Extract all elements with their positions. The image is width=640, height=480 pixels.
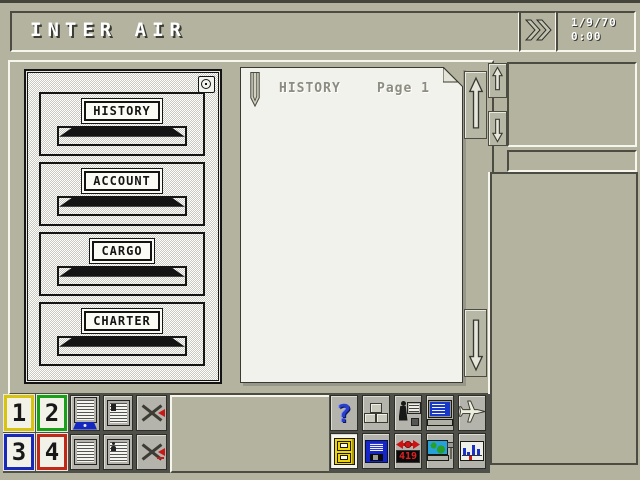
cargo-button[interactable] [362,395,390,431]
toolbar-left-group: 1 2 3 4 [3,394,171,473]
staff-button[interactable] [394,395,422,431]
computer-icon [427,400,453,426]
num-4-button[interactable]: 4 [37,434,67,470]
paper-title: HISTORY [279,81,341,96]
airplane-icon [459,400,486,427]
routes-button[interactable]: 419 [394,433,422,469]
list-down-button[interactable] [488,111,507,146]
arrow-down-icon [468,312,484,374]
cabinet-face: HISTORY ACCOUNT CARGO CHARTER [27,72,219,381]
floppy-disk-icon [365,440,388,463]
route-counter-icon: 419 [396,440,420,463]
num-3-label: 3 [12,438,26,466]
fast-forward-icon [525,19,552,45]
num-3-button[interactable]: 3 [4,434,34,470]
paperclip-icon [248,64,262,120]
drawer-label: CHARTER [84,311,160,331]
page-up-button[interactable] [464,71,487,139]
cargo-crates-icon [363,402,389,424]
newspaper-icon [73,397,97,430]
route-add-disabled-icon [138,397,165,429]
route-remove-disabled-icon [138,436,165,468]
report-page-button[interactable] [70,434,100,470]
flights-button[interactable] [458,395,486,431]
history-paper: HISTORY Page 1 [240,67,463,383]
statistics-button[interactable] [458,433,486,469]
drawer-handle [57,196,187,216]
game-time: 0:00 [571,30,602,43]
fast-forward-button[interactable] [519,11,557,52]
statistics-icon [460,441,484,461]
arrow-up-icon [491,65,504,96]
route-remove-disabled-button[interactable] [136,434,167,470]
page-fold-icon [443,67,463,91]
game-screen: INTER AIR 1/9/70 0:00 HISTORY [0,0,640,480]
num-1-label: 1 [12,399,26,427]
staff-report-icon [107,439,130,465]
aircraft-report-icon [107,400,130,426]
world-map-icon [427,440,454,462]
newspaper-button[interactable] [70,395,100,431]
filing-cabinet-icon [334,438,355,465]
num-2-button[interactable]: 2 [37,395,67,431]
info-list-box [507,62,637,147]
drawer-handle [57,336,187,356]
drawer-label-plate: ACCOUNT [81,168,163,194]
arrow-down-icon [491,113,504,144]
toolbar-right-group: ? [329,394,490,473]
arrow-up-icon [468,74,484,136]
num-2-label: 2 [45,399,59,427]
list-up-button[interactable] [488,63,507,98]
filing-cabinet: HISTORY ACCOUNT CARGO CHARTER [24,69,222,384]
report-page-icon [74,439,97,465]
drawer-label-plate: HISTORY [81,98,163,124]
drawer-label-plate: CHARTER [81,308,163,334]
drawer-charter[interactable]: CHARTER [39,302,205,366]
date-time-panel: 1/9/70 0:00 [556,11,636,52]
num-1-button[interactable]: 1 [4,395,34,431]
drawer-handle [57,126,187,146]
drawer-cargo[interactable]: CARGO [39,232,205,296]
aircraft-report-button[interactable] [103,395,133,431]
side-panel [490,172,638,465]
game-date: 1/9/70 [571,16,617,29]
drawer-label-plate: CARGO [89,238,154,264]
title-bar: INTER AIR [10,11,520,52]
num-4-label: 4 [45,438,59,466]
drawer-handle [57,266,187,286]
info-value-bar [507,150,637,172]
drawer-label: ACCOUNT [84,171,160,191]
cabinet-view-button[interactable] [330,433,358,469]
drawer-label: HISTORY [84,101,160,121]
save-button[interactable] [362,433,390,469]
computer-button[interactable] [426,395,454,431]
drawer-account[interactable]: ACCOUNT [39,162,205,226]
help-button[interactable]: ? [330,395,358,431]
page-down-button[interactable] [464,309,487,377]
staff-report-button[interactable] [103,434,133,470]
route-counter-value: 419 [396,450,420,463]
message-panel [170,395,331,473]
map-button[interactable] [426,433,454,469]
route-add-disabled-button[interactable] [136,395,167,431]
drawer-history[interactable]: HISTORY [39,92,205,156]
staff-office-icon [396,400,421,427]
drawer-label: CARGO [92,241,151,261]
paper-page-number: Page 1 [377,81,430,96]
airline-name: INTER AIR [30,19,187,41]
cabinet-close-icon[interactable] [198,76,215,93]
help-icon: ? [336,401,351,426]
